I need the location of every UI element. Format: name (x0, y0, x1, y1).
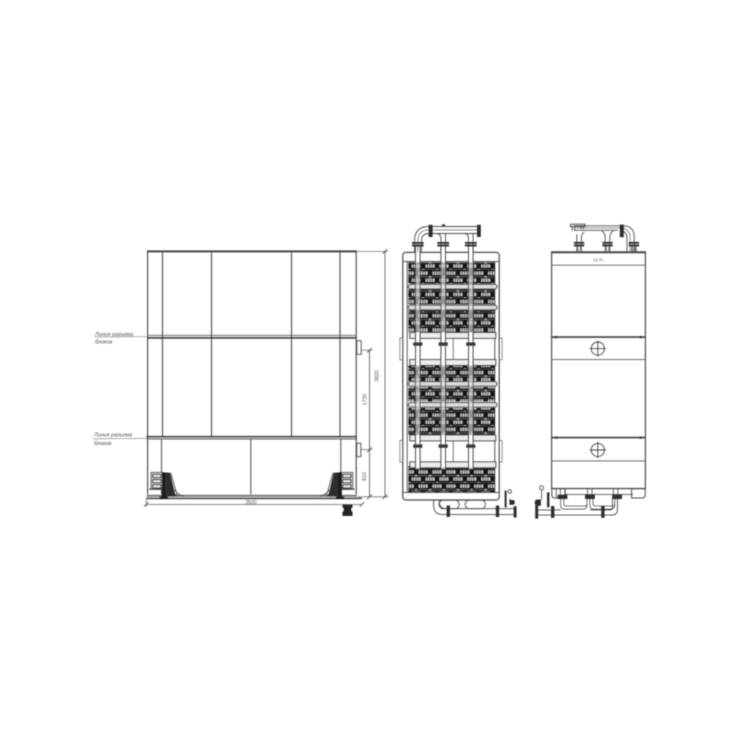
svg-text:1675: 1675 (593, 258, 604, 263)
svg-text:3500: 3500 (245, 500, 256, 506)
svg-text:блоков: блоков (94, 441, 111, 447)
svg-text:Линия разъема: Линия разъема (93, 433, 132, 439)
svg-text:3820: 3820 (375, 370, 381, 382)
svg-text:1720: 1720 (363, 394, 369, 406)
svg-text:блоков: блоков (95, 340, 112, 346)
svg-text:810: 810 (362, 472, 368, 481)
